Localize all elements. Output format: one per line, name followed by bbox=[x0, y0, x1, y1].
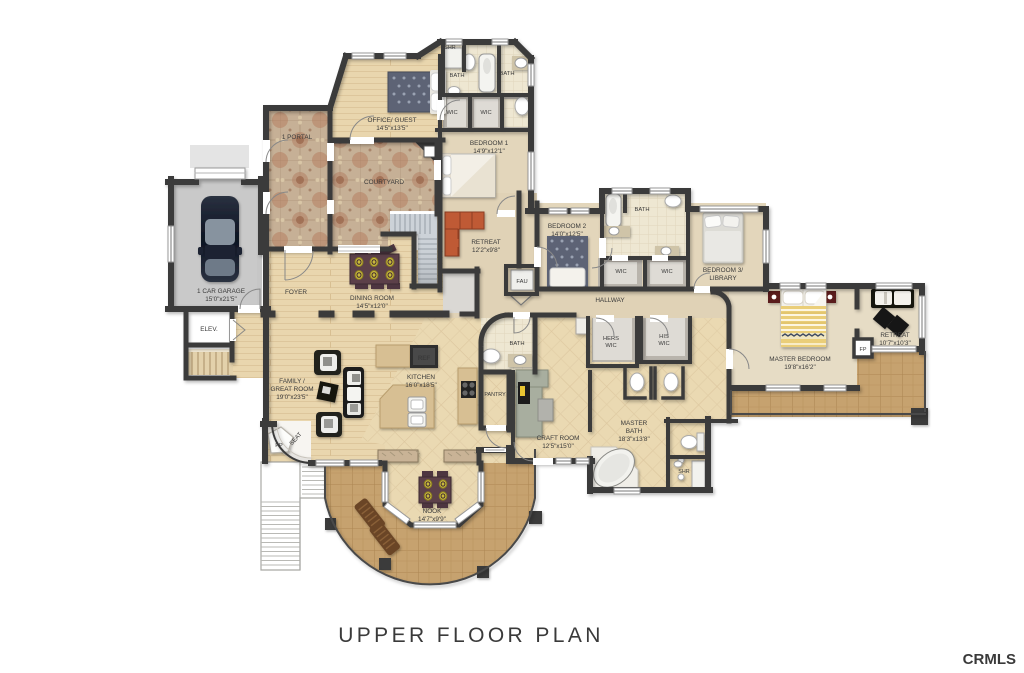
svg-text:19'0"x23'5": 19'0"x23'5" bbox=[276, 394, 308, 401]
svg-text:LIBRARY: LIBRARY bbox=[709, 275, 737, 282]
svg-text:GREAT ROOM: GREAT ROOM bbox=[270, 386, 313, 393]
svg-text:WIC: WIC bbox=[605, 343, 616, 349]
svg-text:NOOK: NOOK bbox=[423, 508, 443, 515]
svg-text:FP: FP bbox=[860, 347, 867, 353]
svg-text:14'7"x9'9": 14'7"x9'9" bbox=[418, 516, 446, 523]
svg-text:WIC: WIC bbox=[658, 341, 669, 347]
svg-text:MASTER: MASTER bbox=[621, 420, 648, 427]
svg-text:14'9"x12'1": 14'9"x12'1" bbox=[473, 148, 505, 155]
svg-text:MASTER BEDROOM: MASTER BEDROOM bbox=[769, 356, 830, 363]
svg-text:BEDROOM 3/: BEDROOM 3/ bbox=[703, 267, 743, 274]
svg-text:WIC: WIC bbox=[661, 269, 672, 275]
svg-text:14'0"x12'5": 14'0"x12'5" bbox=[551, 231, 583, 238]
svg-text:RETREAT: RETREAT bbox=[471, 239, 500, 246]
svg-text:FAMILY /: FAMILY / bbox=[279, 378, 305, 385]
svg-text:18'3"x13'8": 18'3"x13'8" bbox=[618, 436, 650, 443]
svg-text:SHR: SHR bbox=[678, 469, 689, 475]
svg-text:BATH: BATH bbox=[449, 73, 464, 79]
svg-text:15'0"x21'5": 15'0"x21'5" bbox=[205, 296, 237, 303]
svg-text:PANTRY: PANTRY bbox=[484, 392, 506, 398]
svg-text:BEDROOM 2: BEDROOM 2 bbox=[548, 223, 587, 230]
svg-text:WIC: WIC bbox=[446, 110, 457, 116]
svg-text:RETREAT: RETREAT bbox=[880, 332, 909, 339]
svg-text:FAU: FAU bbox=[516, 279, 527, 285]
svg-text:ELEV.: ELEV. bbox=[200, 326, 218, 333]
svg-text:16'0"x18'5": 16'0"x18'5" bbox=[405, 382, 437, 389]
svg-text:HIS: HIS bbox=[659, 334, 669, 340]
svg-text:SHR: SHR bbox=[444, 45, 455, 51]
svg-text:CRAFT ROOM: CRAFT ROOM bbox=[537, 435, 580, 442]
svg-text:12'5"x15'0": 12'5"x15'0" bbox=[542, 443, 574, 450]
svg-text:UPPER FLOOR PLAN: UPPER FLOOR PLAN bbox=[338, 624, 604, 647]
svg-text:COURTYARD: COURTYARD bbox=[364, 179, 404, 186]
svg-text:19'8"x16'2": 19'8"x16'2" bbox=[784, 364, 816, 371]
svg-text:KITCHEN: KITCHEN bbox=[407, 374, 435, 381]
svg-text:1 PORTAL: 1 PORTAL bbox=[282, 134, 313, 141]
svg-text:BEDROOM 1: BEDROOM 1 bbox=[470, 140, 509, 147]
svg-text:14'5"x13'5": 14'5"x13'5" bbox=[376, 125, 408, 132]
svg-text:BATH: BATH bbox=[509, 341, 524, 347]
svg-text:12'2"x9'8": 12'2"x9'8" bbox=[472, 247, 500, 254]
svg-text:DINING ROOM: DINING ROOM bbox=[350, 295, 394, 302]
svg-text:HALLWAY: HALLWAY bbox=[595, 297, 625, 304]
svg-text:FP: FP bbox=[275, 443, 283, 449]
svg-text:BATH: BATH bbox=[499, 71, 514, 77]
svg-text:10'7"x10'3": 10'7"x10'3" bbox=[879, 340, 911, 347]
svg-text:HERS: HERS bbox=[603, 336, 619, 342]
svg-text:WIC: WIC bbox=[615, 269, 626, 275]
svg-text:14'5"x12'0": 14'5"x12'0" bbox=[356, 303, 388, 310]
svg-text:OFFICE/ GUEST: OFFICE/ GUEST bbox=[368, 117, 417, 124]
svg-text:BATH: BATH bbox=[626, 428, 643, 435]
svg-text:CRMLS: CRMLS bbox=[963, 651, 1016, 668]
svg-text:WIC: WIC bbox=[480, 110, 491, 116]
svg-text:1 CAR GARAGE: 1 CAR GARAGE bbox=[197, 288, 245, 295]
svg-text:BATH: BATH bbox=[634, 207, 649, 213]
svg-text:REF: REF bbox=[418, 355, 431, 362]
svg-text:FOYER: FOYER bbox=[285, 289, 307, 296]
